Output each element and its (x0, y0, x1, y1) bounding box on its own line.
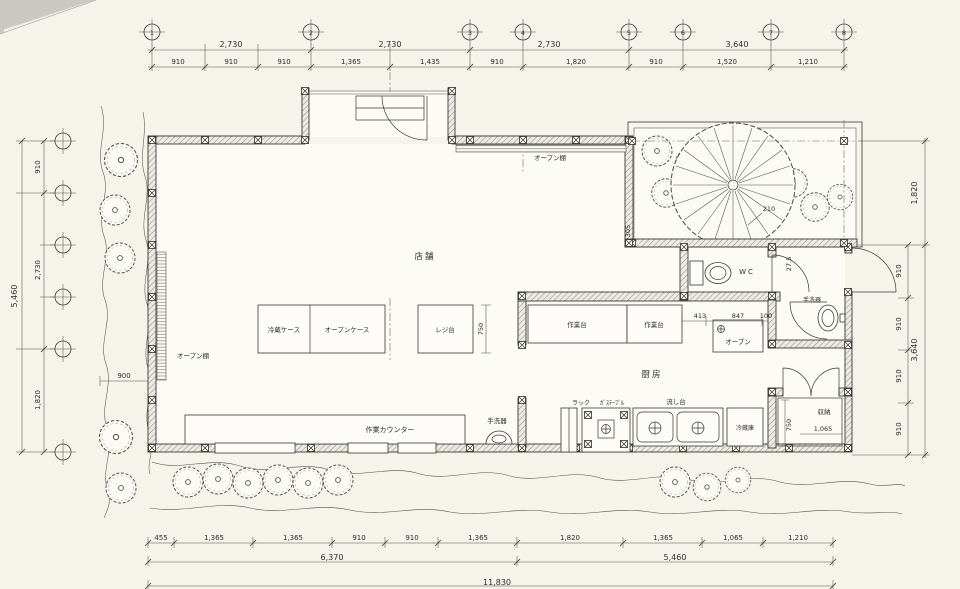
label-gas-table: ｶﾞｽﾃｰﾌﾞﾙ (600, 400, 624, 407)
dim-bottom1-8: 1,065 (723, 534, 743, 542)
svg-text:8: 8 (842, 29, 846, 37)
dim-storage-depth: 750 (785, 419, 793, 431)
dim-counter-1: 847 (732, 312, 744, 320)
label-open-shelf-left: オープン棚 (177, 351, 210, 360)
dim-bottom2-0: 6,370 (321, 553, 344, 562)
dim-bottom1-7: 1,365 (653, 534, 673, 542)
dim-left-overall: 5,460 (10, 285, 19, 308)
toilet (690, 261, 731, 285)
label-work-counter: 作業カウンター (366, 425, 415, 434)
dim-top2-3: 1,365 (341, 58, 361, 66)
dim-left-seg-1: 2,730 (34, 260, 42, 280)
label-sink: 流し台 (666, 397, 686, 406)
svg-text:2: 2 (309, 29, 313, 37)
dim-right-overall: 3,640 (910, 339, 919, 362)
rack (561, 408, 577, 452)
dim-top1-1: 2,730 (379, 40, 402, 49)
dim-top2-6: 1,820 (566, 58, 586, 66)
svg-text:6: 6 (681, 29, 685, 37)
dim-counter-2: 100 (760, 312, 772, 320)
dim-left-extra: 900 (117, 372, 130, 380)
label-oven: オーブン (725, 337, 751, 346)
svg-text:5: 5 (627, 29, 631, 37)
open-shelf-top (456, 145, 626, 152)
label-storage: 収納 (818, 407, 831, 416)
dim-counter-0: 413 (694, 312, 706, 320)
dim-top2-4: 1,435 (420, 58, 440, 66)
dim-top1-3: 3,640 (726, 40, 749, 49)
dim-bottom1-6: 1,820 (560, 534, 580, 542)
dim-bottom1-3: 910 (352, 534, 365, 542)
open-shelf-left (157, 252, 166, 380)
dim-top1-2: 2,730 (538, 40, 561, 49)
dim-top2-7: 910 (649, 58, 662, 66)
dim-bottom1-1: 1,365 (204, 534, 224, 542)
work-counter (185, 415, 465, 444)
dim-left-seg-2: 1,820 (34, 390, 42, 410)
dim-island-depth: 750 (477, 323, 485, 335)
floor-plan-sheet: 210 (0, 0, 960, 589)
dim-top2-8: 1,520 (717, 58, 737, 66)
dim-bottom2-1: 5,460 (664, 553, 687, 562)
dim-top2-1: 910 (224, 58, 237, 66)
dim-bottom1-9: 1,210 (788, 534, 808, 542)
dim-top2-2: 910 (277, 58, 290, 66)
dim-bottom-overall: 11,830 (483, 578, 511, 587)
oven (713, 320, 763, 352)
label-work-table-1: 作業台 (567, 320, 587, 329)
label-work-table-2: 作業台 (644, 320, 664, 329)
dim-left-seg-0: 910 (34, 160, 42, 173)
dim-right-garden: 1,820 (910, 182, 919, 205)
label-hand-basin-shop: 手洗器 (487, 416, 507, 425)
dim-bottom1-0: 455 (154, 534, 167, 542)
dim-top2-9: 1,210 (798, 58, 818, 66)
dim-storage-width: 1,065 (814, 425, 833, 433)
room-label-wc: WC (739, 268, 755, 276)
dim-right-seg-1: 910 (895, 317, 903, 330)
floor-plan: 210 (0, 0, 960, 589)
room-label-shop: 店舗 (414, 251, 435, 262)
label-fridge-case: 冷蔵ケース (268, 325, 300, 334)
dim-right-seg-3: 910 (895, 422, 903, 435)
label-register: レジ台 (435, 325, 455, 334)
label-open-case: オープンケース (325, 326, 370, 334)
svg-text:1: 1 (150, 29, 154, 37)
dim-gap-27-5: 27.5 (785, 257, 793, 271)
dim-bottom1-2: 1,365 (283, 534, 303, 542)
dim-bottom1-5: 1,365 (468, 534, 488, 542)
label-refrigerator: 冷蔵庫 (736, 424, 754, 432)
dim-tree: 210 (763, 205, 775, 213)
sink-unit (633, 408, 723, 446)
gas-table (582, 408, 630, 452)
label-rack: ラック (572, 400, 590, 407)
dim-top2-0: 910 (171, 58, 184, 66)
large-tree (671, 123, 795, 247)
svg-text:7: 7 (769, 29, 773, 37)
svg-text:3: 3 (468, 29, 472, 37)
dim-right-seg-0: 910 (895, 264, 903, 277)
dim-top1-0: 2,730 (220, 40, 243, 49)
dim-right-seg-2: 910 (895, 369, 903, 382)
label-open-shelf-top: オープン棚 (534, 153, 567, 162)
svg-text:4: 4 (521, 29, 525, 37)
dim-gap-305: 305 (624, 225, 632, 237)
dim-bottom1-4: 910 (405, 534, 418, 542)
label-hand-basin-corridor: 手洗器 (803, 296, 821, 304)
room-label-kitchen: 厨房 (641, 369, 662, 380)
dim-top2-5: 910 (490, 58, 503, 66)
